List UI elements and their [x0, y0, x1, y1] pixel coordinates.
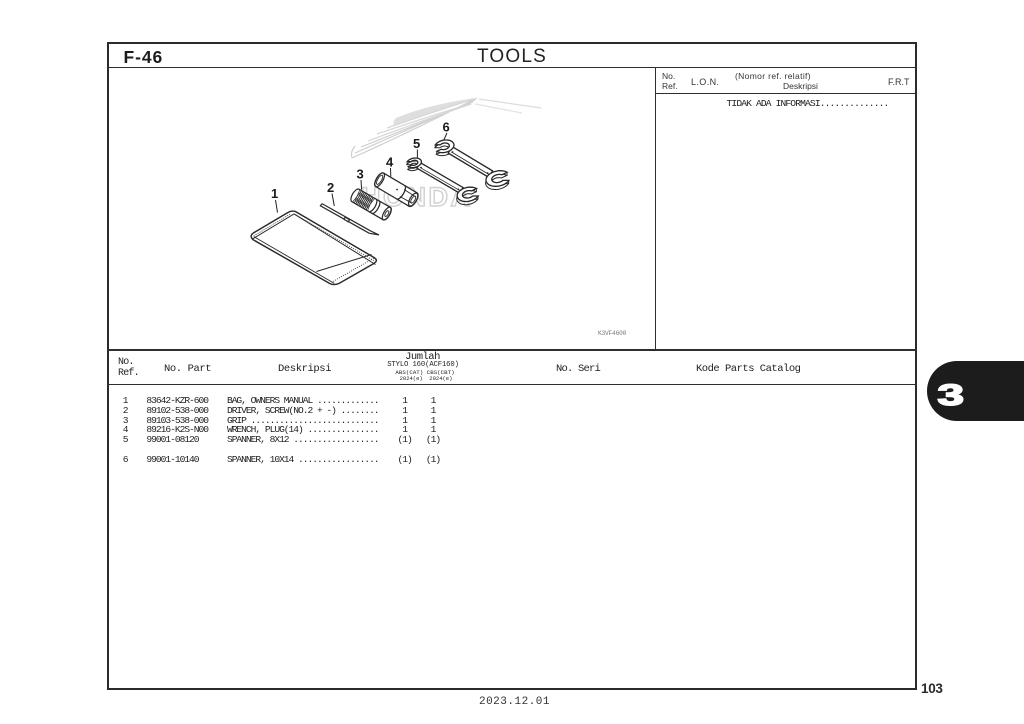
- svg-text:5: 5: [413, 136, 420, 151]
- svg-text:3: 3: [357, 167, 364, 182]
- svg-text:2: 2: [327, 180, 334, 195]
- svg-text:6: 6: [443, 120, 450, 135]
- svg-text:1: 1: [271, 186, 278, 201]
- svg-text:4: 4: [386, 155, 394, 170]
